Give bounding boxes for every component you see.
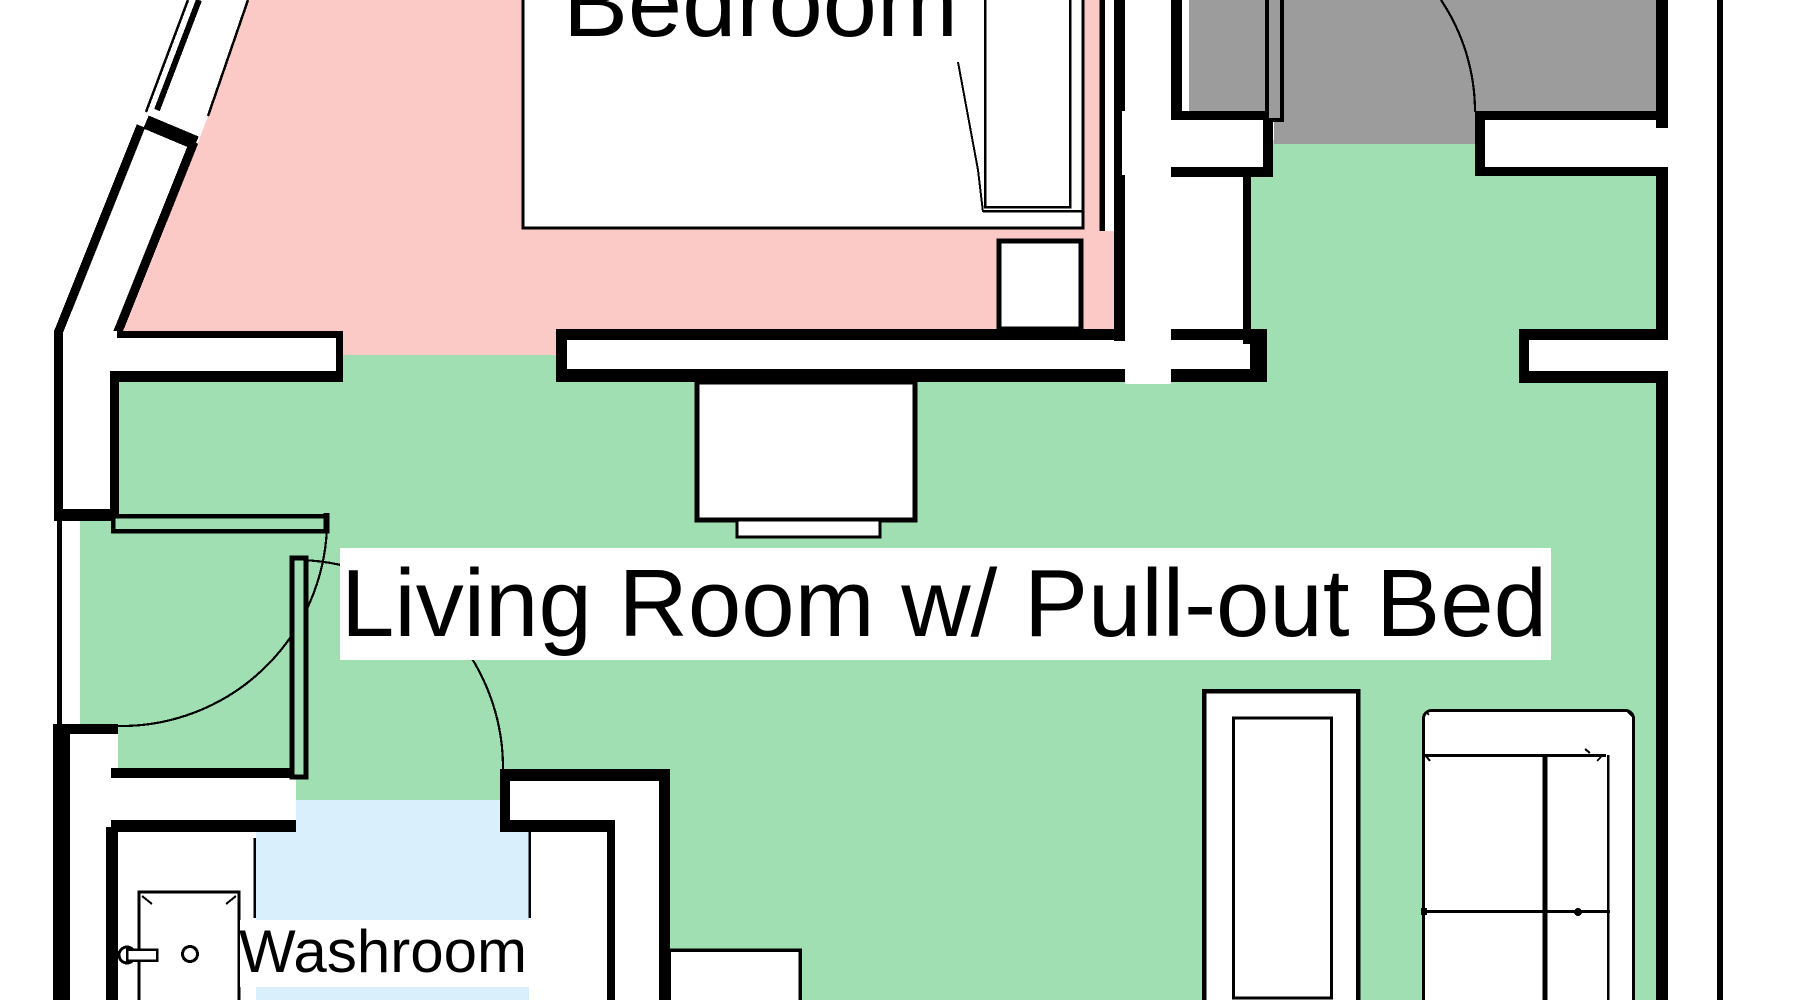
- svg-text:Living Room w/ Pull-out Bed: Living Room w/ Pull-out Bed: [341, 550, 1547, 657]
- svg-text:Bedroom: Bedroom: [563, 0, 958, 57]
- svg-text:Washroom: Washroom: [239, 918, 527, 985]
